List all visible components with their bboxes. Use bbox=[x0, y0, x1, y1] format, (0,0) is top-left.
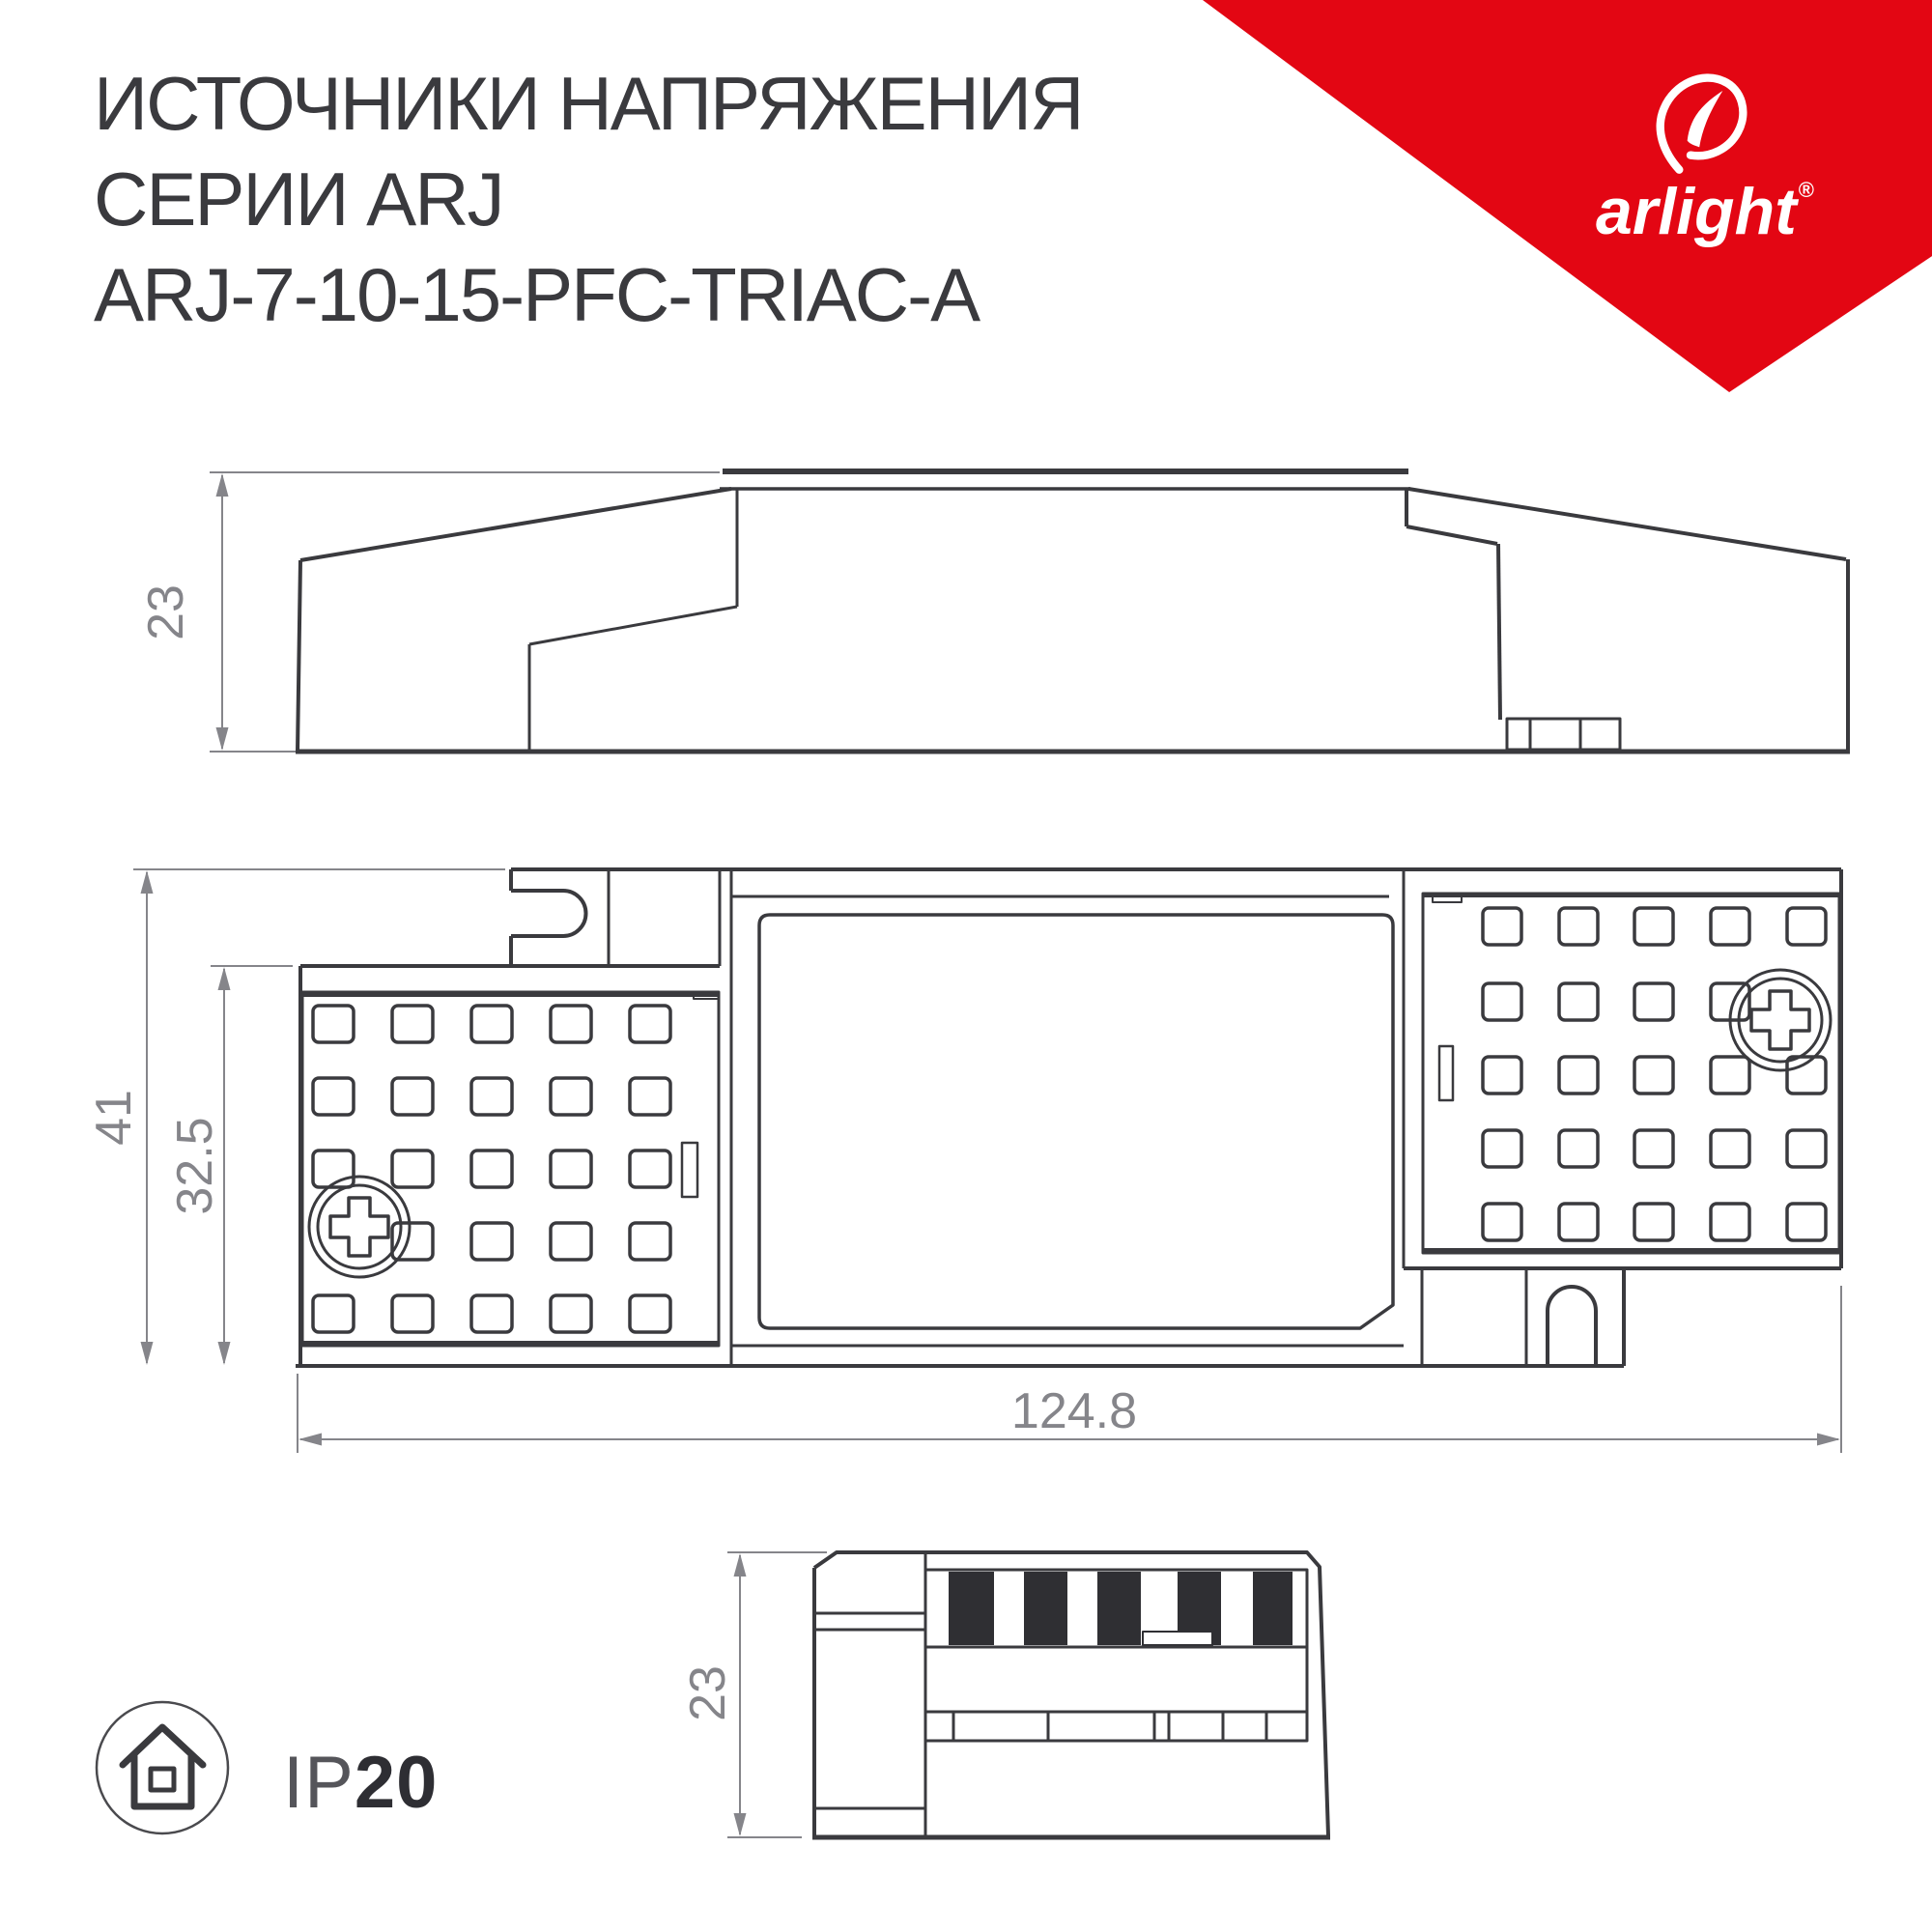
end-view-height-dimension bbox=[727, 1552, 827, 1837]
plan-view-drawing bbox=[296, 869, 1841, 1366]
left-screw-icon bbox=[309, 1177, 410, 1277]
side-view-height-dimension bbox=[210, 472, 720, 752]
technical-drawings bbox=[0, 0, 1932, 1932]
ip-rating-badge: IP20 bbox=[283, 1741, 438, 1825]
ip20-house-icon bbox=[97, 1702, 228, 1833]
end-view-height-label: 23 bbox=[679, 1655, 737, 1732]
ip-rating-value: 20 bbox=[355, 1742, 439, 1824]
side-view-drawing bbox=[296, 471, 1850, 752]
ip-rating-prefix: IP bbox=[283, 1742, 355, 1824]
side-view-height-label: 23 bbox=[137, 574, 195, 651]
left-vent-grid bbox=[313, 1006, 670, 1332]
plan-view-overall-height-label: 41 bbox=[85, 1079, 143, 1156]
plan-view-width-label: 124.8 bbox=[997, 1383, 1151, 1439]
right-vent-grid bbox=[1483, 908, 1826, 1240]
datasheet-page: ИСТОЧНИКИ НАПРЯЖЕНИЯ СЕРИИ ARJ ARJ-7-10-… bbox=[0, 0, 1932, 1932]
end-view-drawing bbox=[812, 1552, 1330, 1837]
plan-view-body-height-label: 32.5 bbox=[166, 1108, 224, 1224]
